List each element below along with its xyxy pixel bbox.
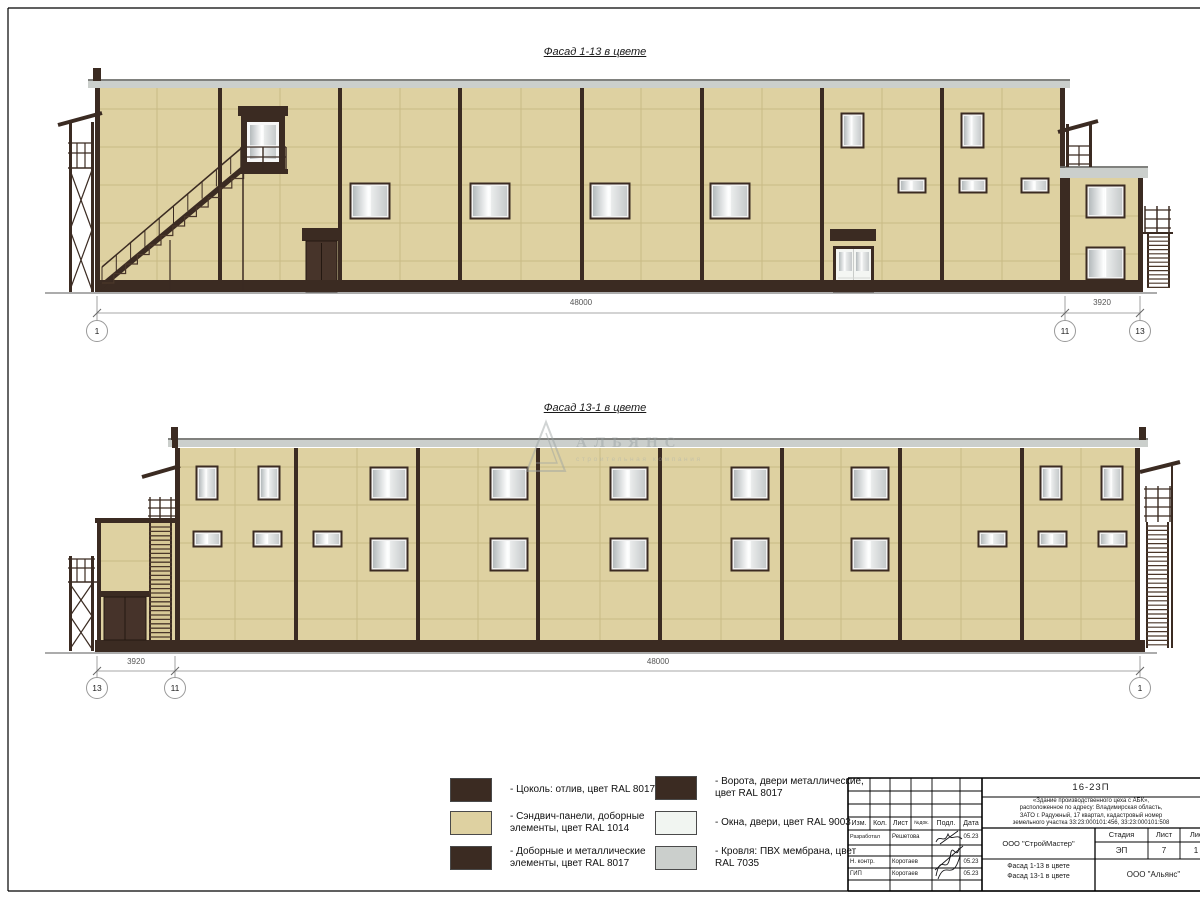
stamp-sheet-label: Лист [1148,828,1180,842]
stamp-subject-line1: Фасад 1-13 в цвете [982,862,1095,872]
dim-3920-bottom: 3920 [111,657,161,666]
stamp-row-developer-role: Разработал [850,830,890,845]
axis-13-bottom: 13 [86,677,108,699]
legend-item-roof: - Кровля: ПВХ мембрана, цвет RAL 7035 [655,846,865,870]
stamp-row-ncontrol-date: 05.23 [960,856,982,868]
legend-label-panels: - Сэндвич-панели, доборные элементы, цве… [510,811,670,835]
stamp-sheets-value: 1 [1180,842,1200,859]
stamp-subject-line2: Фасад 13-1 в цвете [982,872,1095,882]
dim-48000-bottom: 48000 [628,657,688,666]
facade-top-title: Фасад 1-13 в цвете [445,46,745,58]
stamp-row-ncontrol-name: Коротаев [892,856,934,868]
legend-item-trim: - Доборные и металлические элементы, цве… [450,846,670,870]
stamp-row-developer-date: 05.23 [960,830,982,845]
stamp-sheets-label: Листов [1180,828,1200,842]
stamp-stage-value: ЭП [1095,842,1148,859]
legend-swatch-plinth [450,778,492,802]
legend-swatch-windows [655,811,697,835]
stamp-row-gip-date: 05.23 [960,868,982,880]
dim-48000-top: 48000 [551,298,611,307]
legend-label-trim: - Доборные и металлические элементы, цве… [510,846,670,870]
stamp-row-gip-role: ГИП [850,868,890,880]
legend-swatch-panels [450,811,492,835]
stamp-col-izm: Изм. [848,817,870,830]
stamp-col-kol: Кол. [870,817,890,830]
stamp-desc-line3: ЗАТО г. Радужный, 17 квартал, кадастровы… [982,813,1200,820]
legend-item-plinth: - Цоколь: отлив, цвет RAL 8017 [450,778,690,802]
legend-swatch-gates [655,776,697,800]
stamp-col-data: Дата [960,817,982,830]
stamp-doc-number: 16-23П [982,779,1200,797]
legend-swatch-trim [450,846,492,870]
axis-13-top: 13 [1129,320,1151,342]
stamp-sheet-value: 7 [1148,842,1180,859]
dim-3920-top: 3920 [1077,298,1127,307]
stamp-row-gip-name: Коротаев [892,868,934,880]
legend-item-gates: - Ворота, двери металлические, цвет RAL … [655,776,865,800]
stamp-project-description: «Здание производственного цеха с АБК», р… [982,798,1200,828]
stamp-org-client: ООО "Альянс" [1095,859,1200,891]
axis-1-top: 1 [86,320,108,342]
stamp-desc-line2: расположенное по адресу: Владимирская об… [982,805,1200,812]
stamp-col-list: Лист [890,817,911,830]
stamp-org-designer: ООО "СтройМастер" [982,828,1095,859]
axis-1-bottom: 1 [1129,677,1151,699]
facade-bottom-title: Фасад 13-1 в цвете [445,402,745,414]
stamp-row-ncontrol-role: Н. контр. [850,856,890,868]
drawing-sheet: АЛЬЯНС строительная компания Фасад 1-13 … [0,0,1200,900]
facade-drawings [0,0,1200,900]
stamp-stage-label: Стадия [1095,828,1148,842]
stamp-desc-line4: земельного участка 33:23:000101:456, 33:… [982,820,1200,827]
stamp-col-podp: Подл. [932,817,960,830]
legend-label-gates: - Ворота, двери металлические, цвет RAL … [715,776,865,800]
legend-item-panels: - Сэндвич-панели, доборные элементы, цве… [450,811,670,835]
stamp-col-ndok: №док. [911,817,932,830]
axis-11-bottom: 11 [164,677,186,699]
legend-swatch-roof [655,846,697,870]
stamp-desc-line1: «Здание производственного цеха с АБК», [982,798,1200,805]
stamp-row-developer-name: Решетова [892,830,934,845]
axis-11-top: 11 [1054,320,1076,342]
legend-label-roof: - Кровля: ПВХ мембрана, цвет RAL 7035 [715,846,865,870]
stamp-subject: Фасад 1-13 в цвете Фасад 13-1 в цвете [982,862,1095,882]
